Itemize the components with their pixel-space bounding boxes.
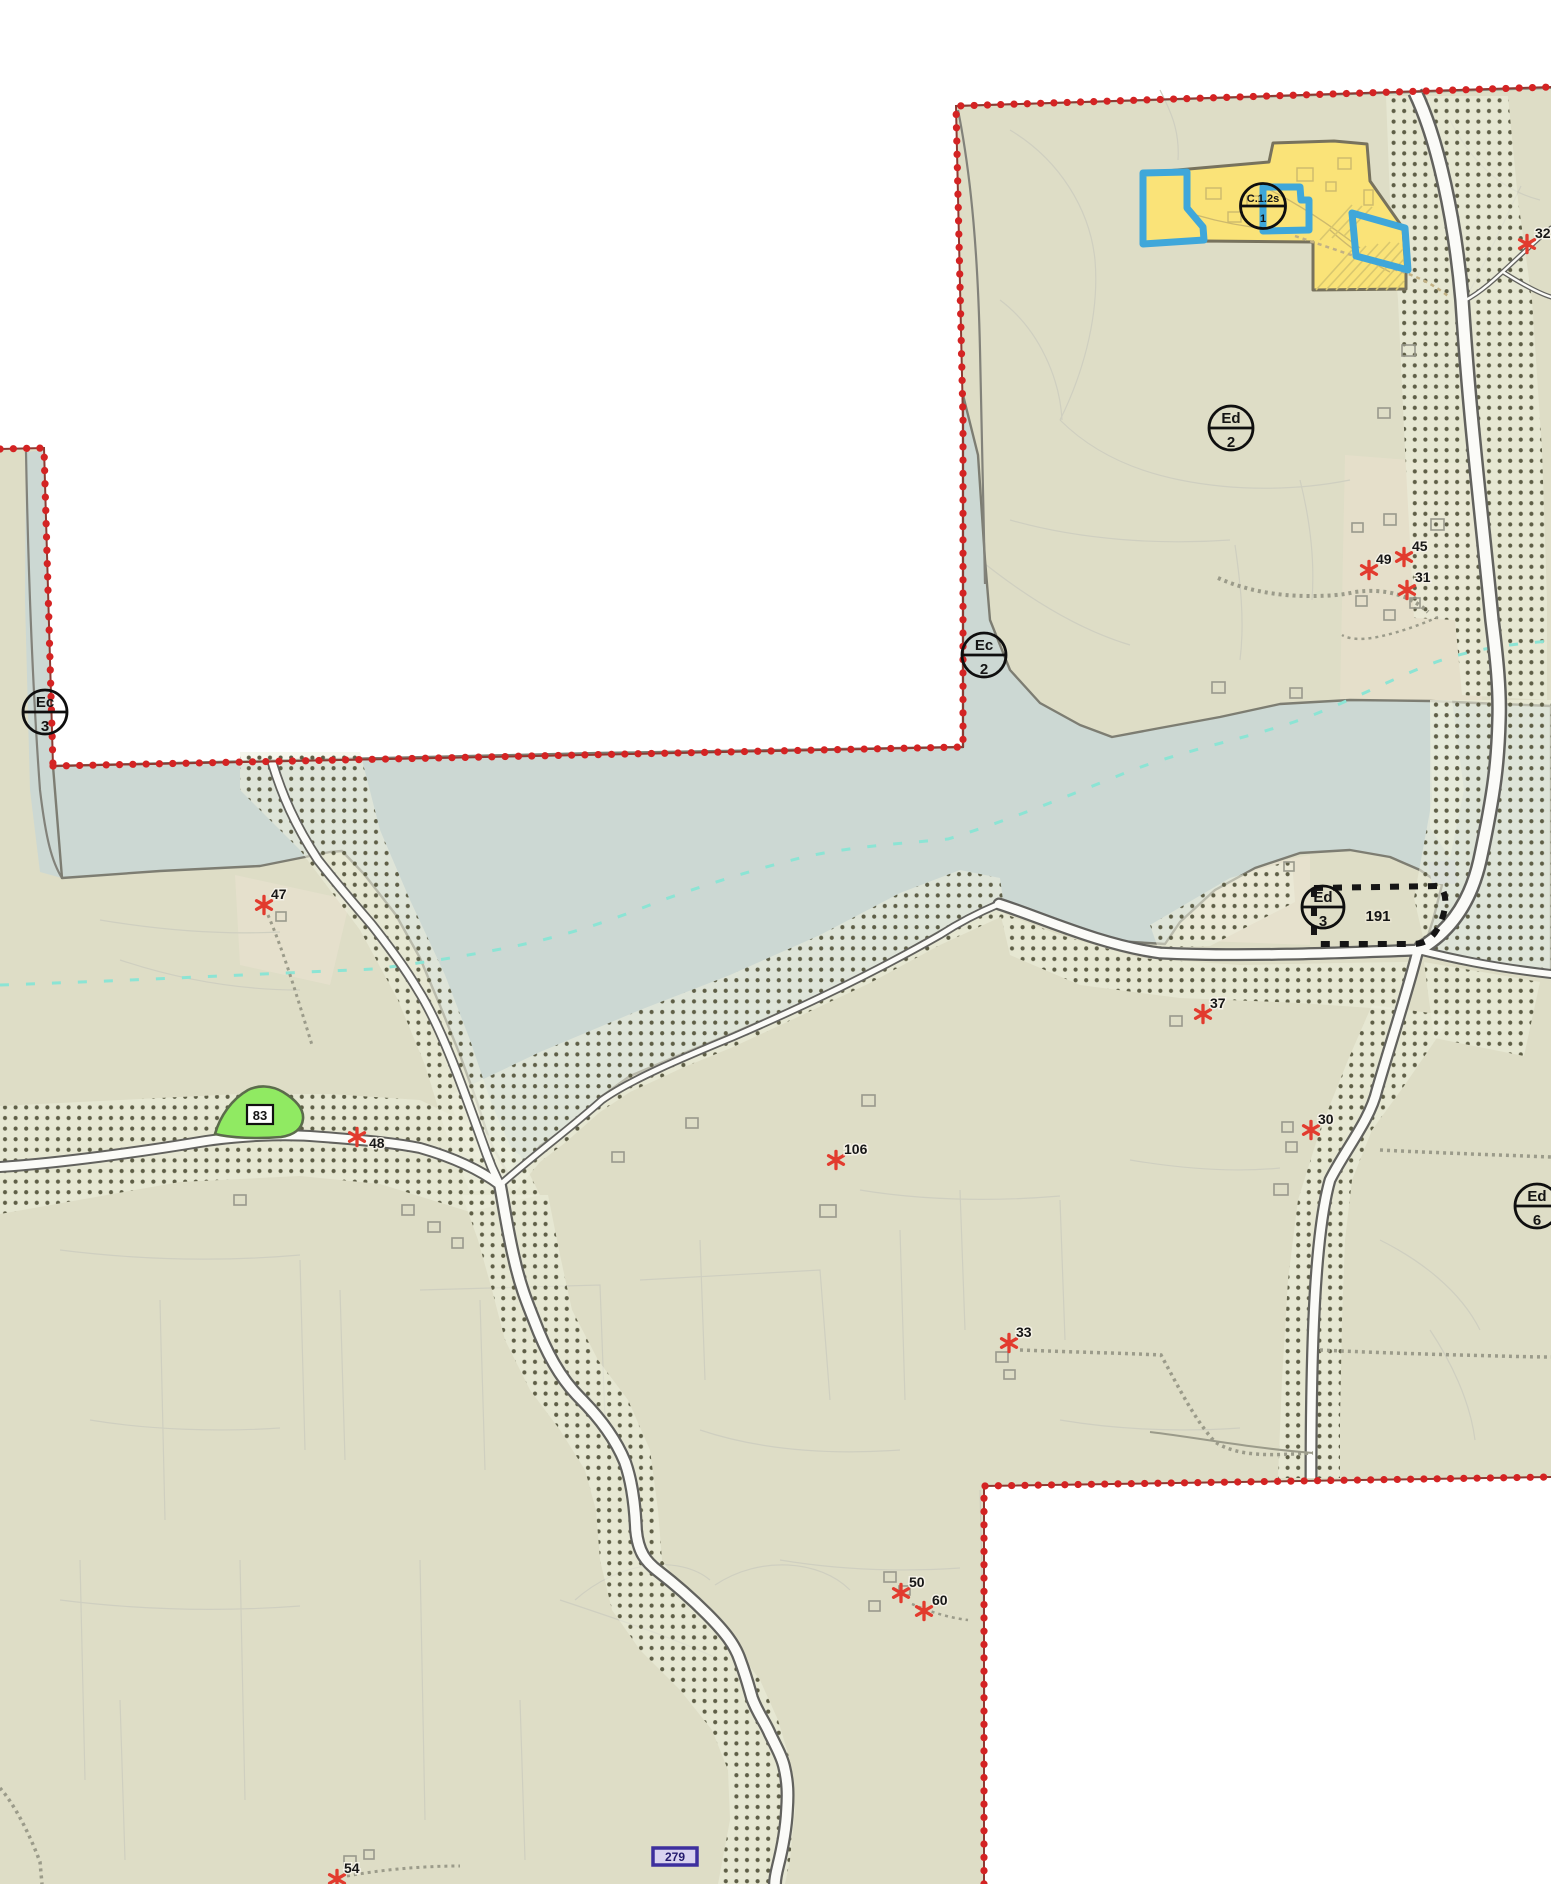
- svg-text:83: 83: [253, 1108, 267, 1123]
- svg-text:1: 1: [1260, 213, 1266, 225]
- svg-text:47: 47: [271, 886, 287, 902]
- svg-text:Ed: Ed: [1313, 889, 1332, 906]
- svg-text:32: 32: [1535, 225, 1551, 241]
- svg-text:45: 45: [1412, 538, 1428, 554]
- svg-text:Ed: Ed: [1527, 1188, 1546, 1205]
- svg-text:49: 49: [1376, 551, 1392, 567]
- svg-text:6: 6: [1533, 1212, 1541, 1229]
- svg-text:C.1.2s: C.1.2s: [1247, 193, 1279, 205]
- svg-text:50: 50: [909, 1574, 925, 1590]
- svg-text:Ed: Ed: [1221, 410, 1240, 427]
- svg-text:279: 279: [665, 1850, 685, 1864]
- svg-text:60: 60: [932, 1592, 948, 1608]
- svg-text:Ec: Ec: [36, 694, 54, 711]
- svg-text:106: 106: [844, 1141, 868, 1157]
- svg-text:191: 191: [1365, 908, 1390, 925]
- svg-text:37: 37: [1210, 995, 1226, 1011]
- svg-text:2: 2: [980, 661, 988, 678]
- svg-text:30: 30: [1318, 1111, 1334, 1127]
- svg-text:3: 3: [41, 718, 49, 735]
- svg-text:54: 54: [344, 1860, 360, 1876]
- svg-text:31: 31: [1415, 569, 1431, 585]
- svg-text:2: 2: [1227, 434, 1235, 451]
- svg-text:33: 33: [1016, 1324, 1032, 1340]
- svg-text:Ec: Ec: [975, 637, 993, 654]
- svg-text:48: 48: [369, 1135, 385, 1151]
- svg-text:3: 3: [1319, 913, 1327, 930]
